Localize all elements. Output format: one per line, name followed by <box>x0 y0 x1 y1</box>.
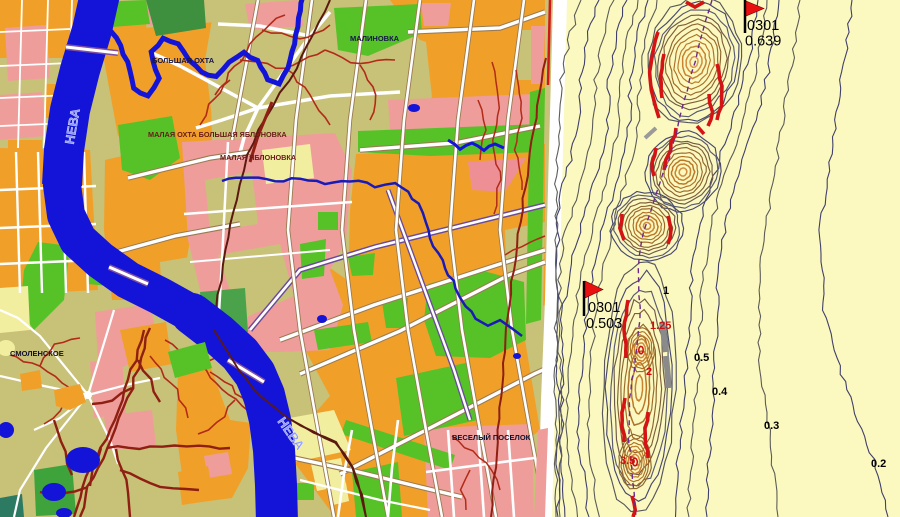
svg-text:1.25: 1.25 <box>650 320 671 332</box>
svg-text:2: 2 <box>646 366 652 378</box>
svg-text:0.4: 0.4 <box>712 386 728 398</box>
svg-text:0.2: 0.2 <box>871 458 886 470</box>
svg-text:0.639: 0.639 <box>745 34 781 50</box>
svg-text:0.3: 0.3 <box>764 420 779 432</box>
svg-text:МАЛИНОВКА: МАЛИНОВКА <box>350 34 400 43</box>
svg-text:0.503: 0.503 <box>586 316 622 332</box>
svg-text:МАЛАЯ ЯБЛОНОВКА: МАЛАЯ ЯБЛОНОВКА <box>220 153 297 162</box>
svg-text:БОЛЬШАЯ ОХТА: БОЛЬШАЯ ОХТА <box>152 56 215 65</box>
svg-text:3.5: 3.5 <box>620 455 635 467</box>
svg-text:СМОЛЕНСКОЕ: СМОЛЕНСКОЕ <box>10 349 64 358</box>
svg-text:0301: 0301 <box>588 300 620 316</box>
svg-text:ВЕСЕЛЫЙ ПОСЕЛОК: ВЕСЕЛЫЙ ПОСЕЛОК <box>452 433 531 442</box>
svg-text:0.5: 0.5 <box>694 352 709 364</box>
svg-text:1: 1 <box>663 285 669 297</box>
svg-text:0301: 0301 <box>747 18 779 34</box>
svg-text:МАЛАЯ ОХТА БОЛЬШАЯ ЯБЛОНОВКА: МАЛАЯ ОХТА БОЛЬШАЯ ЯБЛОНОВКА <box>148 130 287 139</box>
